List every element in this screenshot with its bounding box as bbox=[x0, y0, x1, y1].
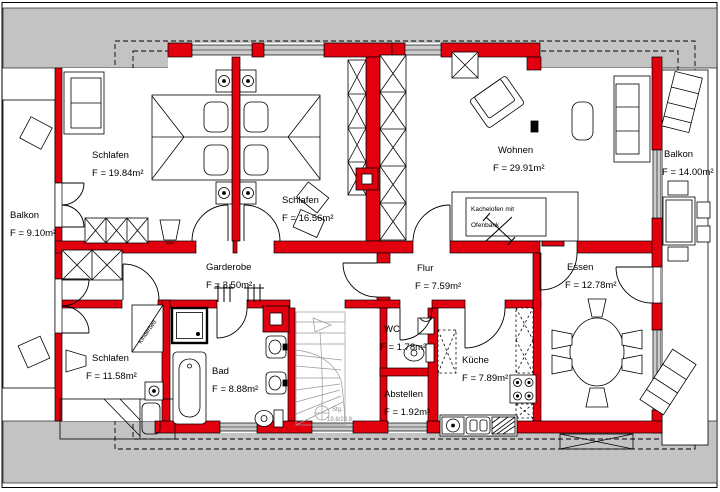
room-label-schlafen-sw-name: Schlafen bbox=[92, 353, 129, 364]
room-label-schlafen-n-name: Schlafen bbox=[282, 195, 319, 206]
stove bbox=[510, 375, 536, 403]
nightstand-sw bbox=[145, 382, 163, 400]
room-label-wohnen-name: Wohnen bbox=[498, 145, 533, 156]
room-label-balkon-west-name: Balkon bbox=[10, 210, 39, 221]
kachelofen-callout: Kachelofen mit Ofenbank bbox=[452, 192, 578, 245]
room-label-wohnen-area: F = 29.91m² bbox=[493, 163, 544, 174]
wardrobe-nw bbox=[85, 218, 148, 243]
room-label-flur-name: Flur bbox=[417, 263, 433, 274]
floor-plan-drawing: Kachelofen mit Ofenbank Schlafen F = 19.… bbox=[0, 0, 720, 492]
sofa-nw bbox=[64, 72, 104, 134]
shelf-wohnen bbox=[380, 55, 406, 240]
room-label-kueche-name: Küche bbox=[462, 355, 489, 366]
room-label-balkon-ost-name: Balkon bbox=[664, 149, 693, 160]
tv-wohnen bbox=[531, 121, 538, 132]
room-label-schlafen-nw-area: F = 19.84m² bbox=[92, 168, 143, 179]
room-label-schlafen-sw-area: F = 11.58m² bbox=[86, 371, 137, 382]
room-label-essen-area: F = 12.78m² bbox=[565, 280, 616, 291]
bed-n bbox=[240, 95, 320, 180]
room-label-essen-name: Essen bbox=[567, 262, 593, 273]
stairs-label-line1: Stg. bbox=[332, 407, 343, 413]
box-wohnen bbox=[452, 52, 478, 78]
side-table-wohnen bbox=[572, 102, 593, 140]
room-label-abstellen-name: Abstellen bbox=[384, 389, 423, 400]
wardrobe-lobby bbox=[62, 250, 122, 280]
room-label-bad-name: Bad bbox=[212, 366, 229, 377]
room-label-schlafen-n-area: F = 16.56m² bbox=[282, 213, 333, 224]
bathtub bbox=[173, 352, 206, 424]
room-label-flur-area: F = 7.59m² bbox=[415, 281, 461, 292]
room-label-schlafen-nw-name: Schlafen bbox=[92, 150, 129, 161]
room-label-balkon-ost-area: F = 14.00m² bbox=[662, 167, 713, 178]
room-label-abstellen-area: F = 1.92m² bbox=[384, 407, 430, 418]
room-label-garderobe-area: F = 3.50m² bbox=[206, 280, 252, 291]
room-label-bad-area: F = 8.88m² bbox=[212, 384, 258, 395]
sofa-wohnen bbox=[614, 76, 650, 162]
room-label-wc-name: WC bbox=[384, 324, 400, 335]
floor-plan-page: Kachelofen mit Ofenbank Schlafen F = 19.… bbox=[0, 0, 720, 492]
stairs-label-line2: 19.6/23.8 bbox=[327, 417, 353, 423]
kachelofen-label-line1: Kachelofen mit bbox=[471, 206, 514, 213]
room-label-kueche-area: F = 7.89m² bbox=[462, 373, 508, 384]
kachelofen-label-line2: Ofenbank bbox=[471, 222, 500, 229]
room-label-balkon-west-area: F = 9.10m² bbox=[10, 228, 56, 239]
kitchen-counter bbox=[440, 415, 517, 436]
room-label-garderobe-name: Garderobe bbox=[206, 262, 251, 273]
room-label-wc-area: F = 1.78m² bbox=[380, 342, 426, 353]
shower bbox=[172, 308, 207, 343]
bed-nw bbox=[152, 95, 232, 180]
bath-toilet bbox=[255, 410, 283, 427]
